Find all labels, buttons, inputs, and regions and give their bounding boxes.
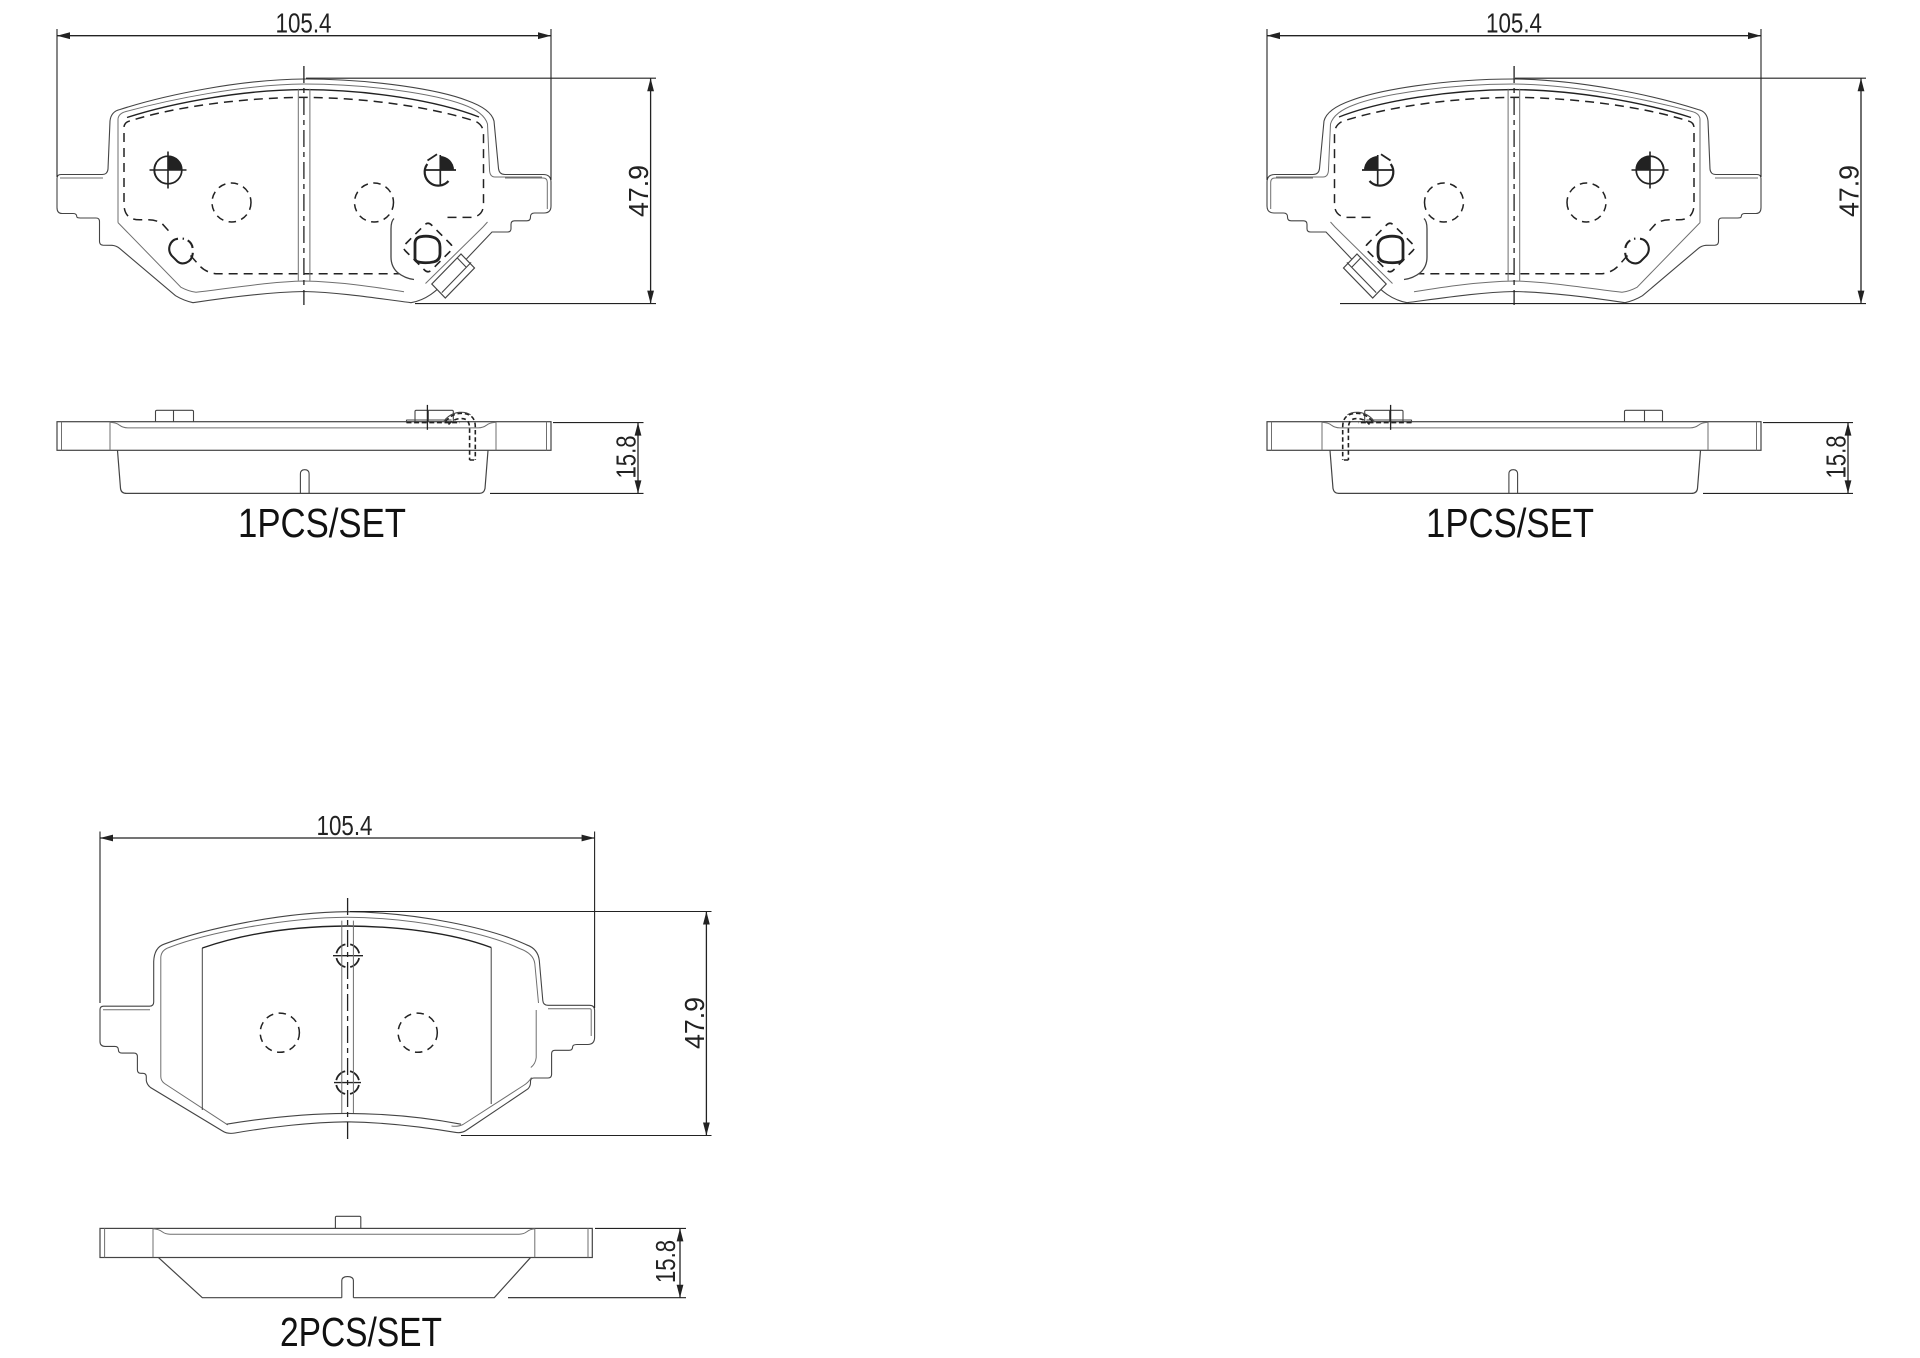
svg-text:105.4: 105.4 — [317, 810, 373, 841]
svg-text:2PCS/SET: 2PCS/SET — [280, 1309, 442, 1355]
svg-text:15.8: 15.8 — [1821, 436, 1852, 479]
svg-text:15.8: 15.8 — [650, 1240, 681, 1283]
svg-text:47.9: 47.9 — [679, 997, 710, 1049]
svg-text:47.9: 47.9 — [623, 165, 654, 217]
svg-text:105.4: 105.4 — [276, 8, 332, 39]
svg-text:15.8: 15.8 — [611, 436, 642, 479]
svg-text:47.9: 47.9 — [1834, 165, 1865, 217]
svg-text:105.4: 105.4 — [1486, 8, 1542, 39]
svg-text:1PCS/SET: 1PCS/SET — [1426, 500, 1594, 546]
svg-text:1PCS/SET: 1PCS/SET — [238, 500, 406, 546]
